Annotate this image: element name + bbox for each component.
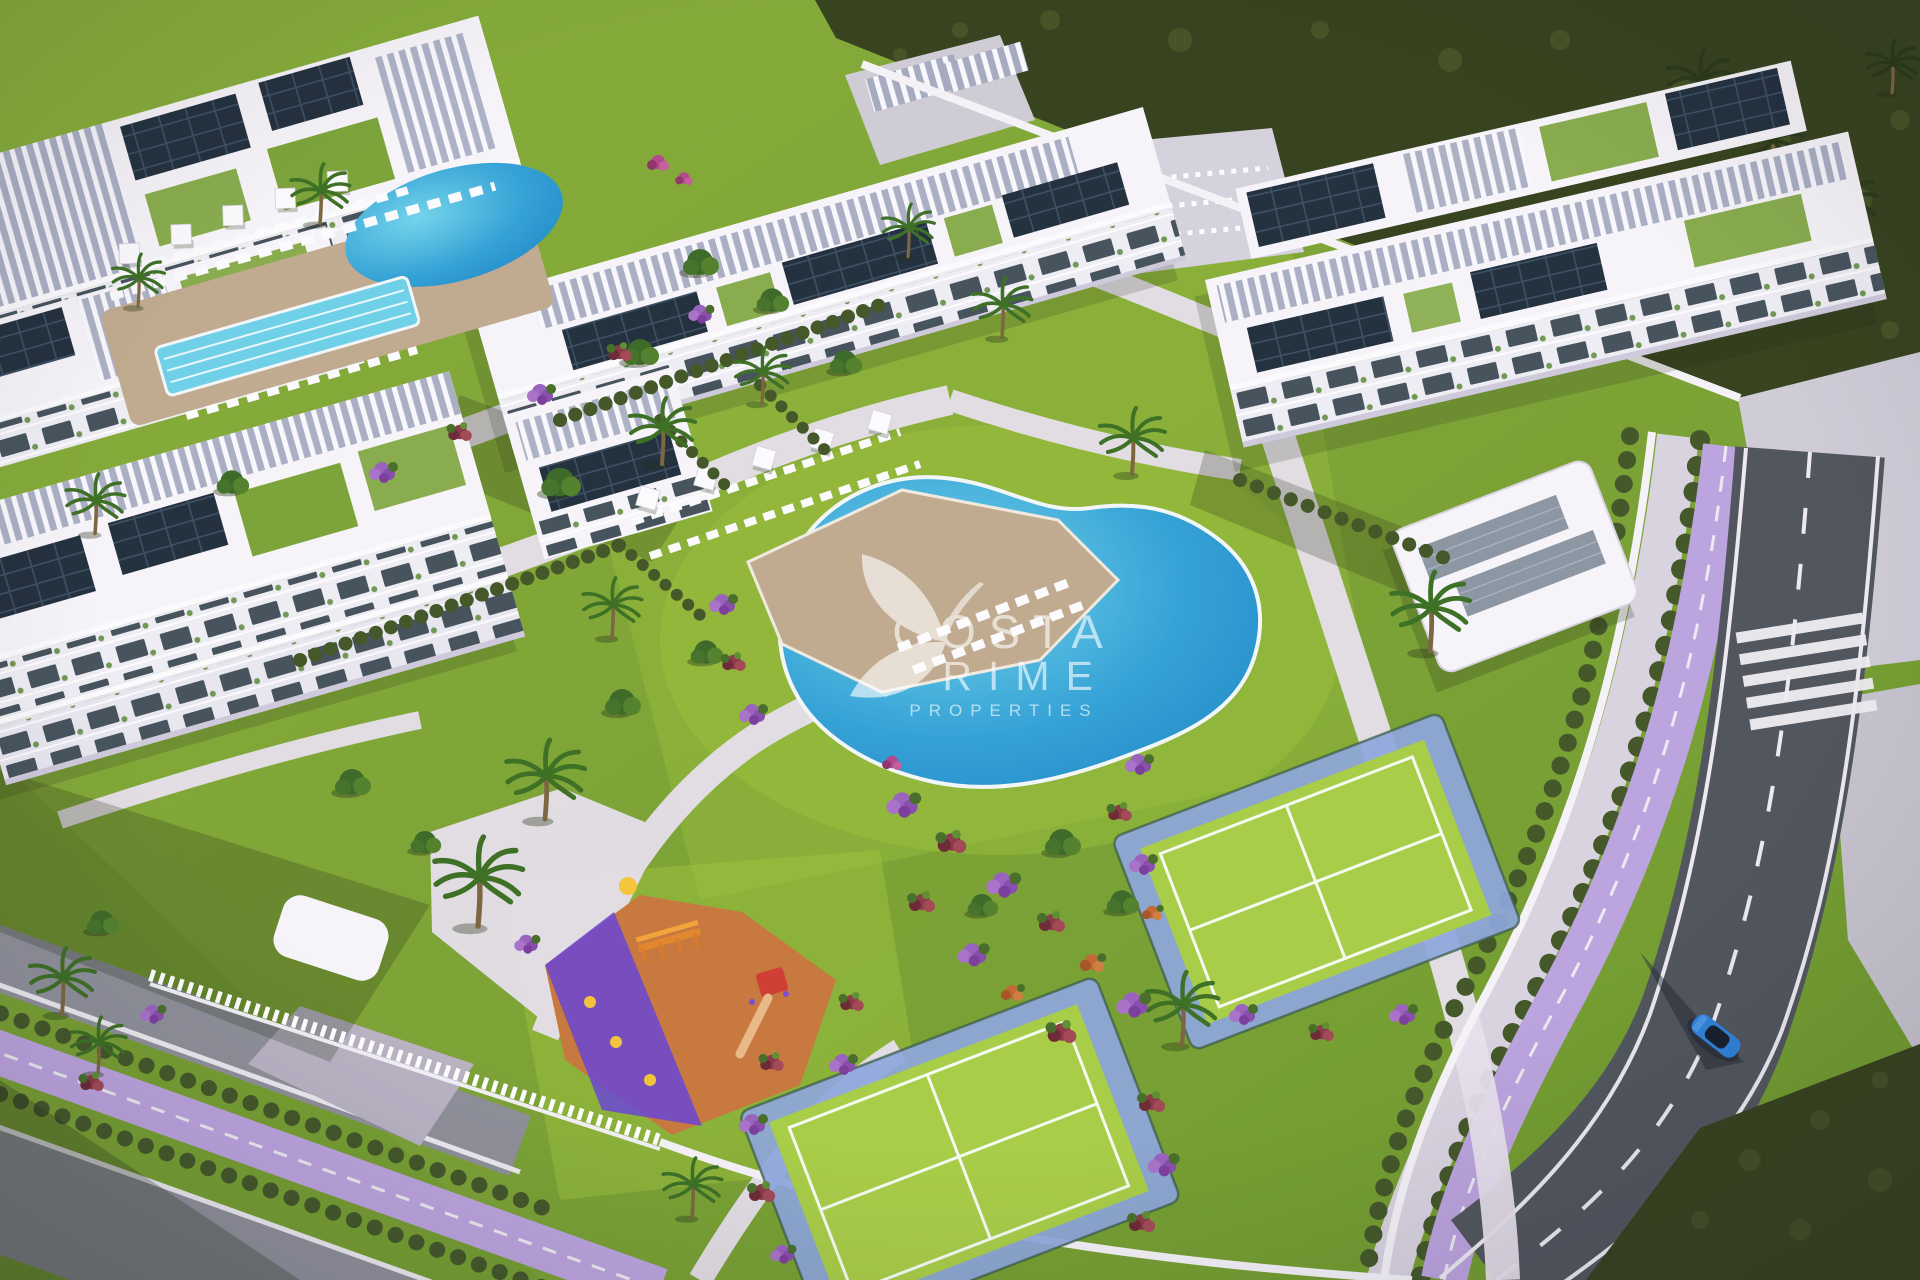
- watermark-tagline: PROPERTIES: [909, 701, 1098, 720]
- aerial-render: COSTA PRIME PROPERTIES: [0, 0, 1920, 1280]
- watermark-brand-top: COSTA: [892, 605, 1115, 658]
- watermark-brand-bottom: PRIME: [899, 653, 1109, 699]
- render-canvas: COSTA PRIME PROPERTIES: [0, 0, 1920, 1280]
